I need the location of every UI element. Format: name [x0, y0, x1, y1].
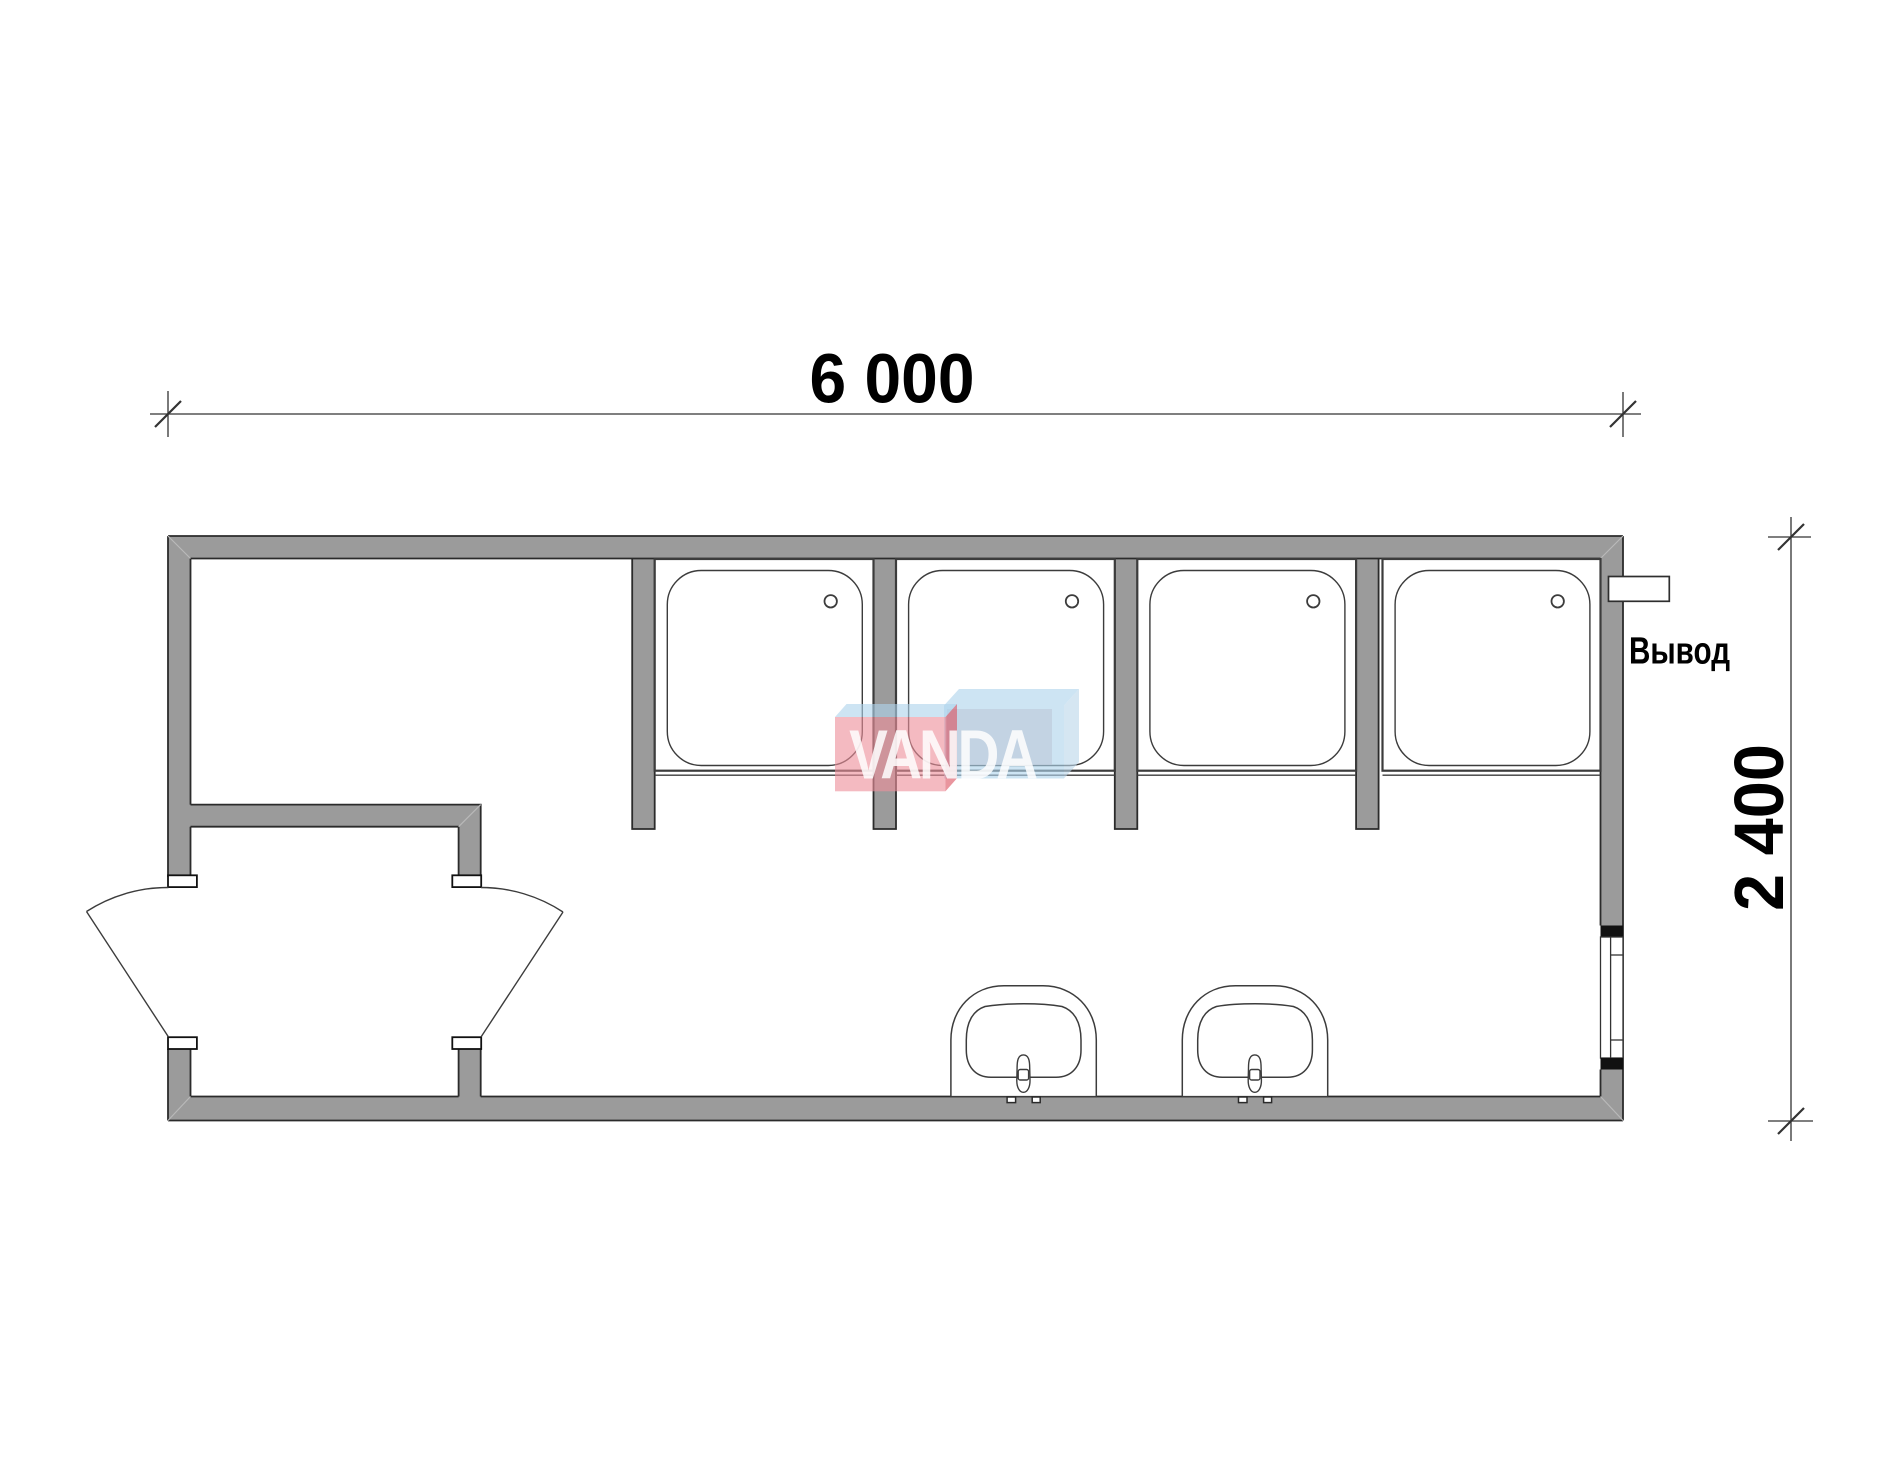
svg-text:6 000: 6 000 [810, 340, 975, 418]
svg-text:VANDA: VANDA [849, 715, 1037, 793]
svg-text:2 400: 2 400 [1720, 744, 1798, 911]
svg-text:Вывод: Вывод [1629, 631, 1730, 673]
